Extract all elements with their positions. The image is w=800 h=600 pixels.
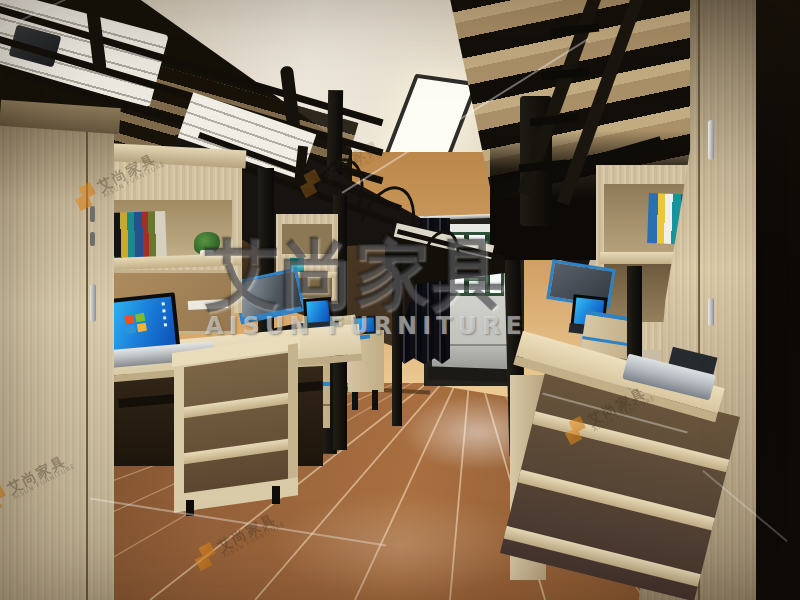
windows-logo-pane bbox=[124, 315, 134, 324]
windows-logo-pane bbox=[137, 323, 147, 332]
wardrobe-handle bbox=[708, 298, 714, 326]
wardrobe-handle bbox=[90, 284, 96, 322]
wardrobe-shading bbox=[0, 116, 114, 600]
bed3-post bbox=[392, 258, 402, 426]
left-wardrobe bbox=[0, 116, 114, 600]
ws3-leg bbox=[352, 392, 358, 410]
wardrobe-door-seam bbox=[86, 130, 88, 600]
desktop-icons bbox=[162, 302, 165, 305]
dormitory-render: 艾尚家具 AISUN FURNITURE 艾尚家具 AISUN FURNITUR… bbox=[0, 0, 800, 600]
shelf-board bbox=[532, 411, 729, 472]
mid-hutch-opening bbox=[282, 224, 332, 254]
shelf-board bbox=[518, 470, 715, 531]
wardrobe-handle bbox=[90, 232, 95, 246]
shelf-side-edge bbox=[288, 343, 298, 478]
dark-side-panel bbox=[756, 0, 800, 600]
shelf-leg bbox=[186, 500, 194, 516]
books bbox=[107, 211, 167, 261]
wardrobe-handle bbox=[708, 120, 714, 160]
windows-logo-pane bbox=[135, 313, 145, 322]
windows-logo-pane bbox=[126, 325, 136, 334]
windows-logo bbox=[124, 313, 148, 334]
shelf-leg bbox=[272, 486, 280, 504]
ws3-leg bbox=[372, 390, 378, 410]
shelf-interior bbox=[184, 353, 288, 494]
wardrobe-handle bbox=[90, 206, 95, 222]
floor-sheen-soft bbox=[270, 490, 530, 600]
laptop-wallpaper bbox=[306, 300, 329, 323]
